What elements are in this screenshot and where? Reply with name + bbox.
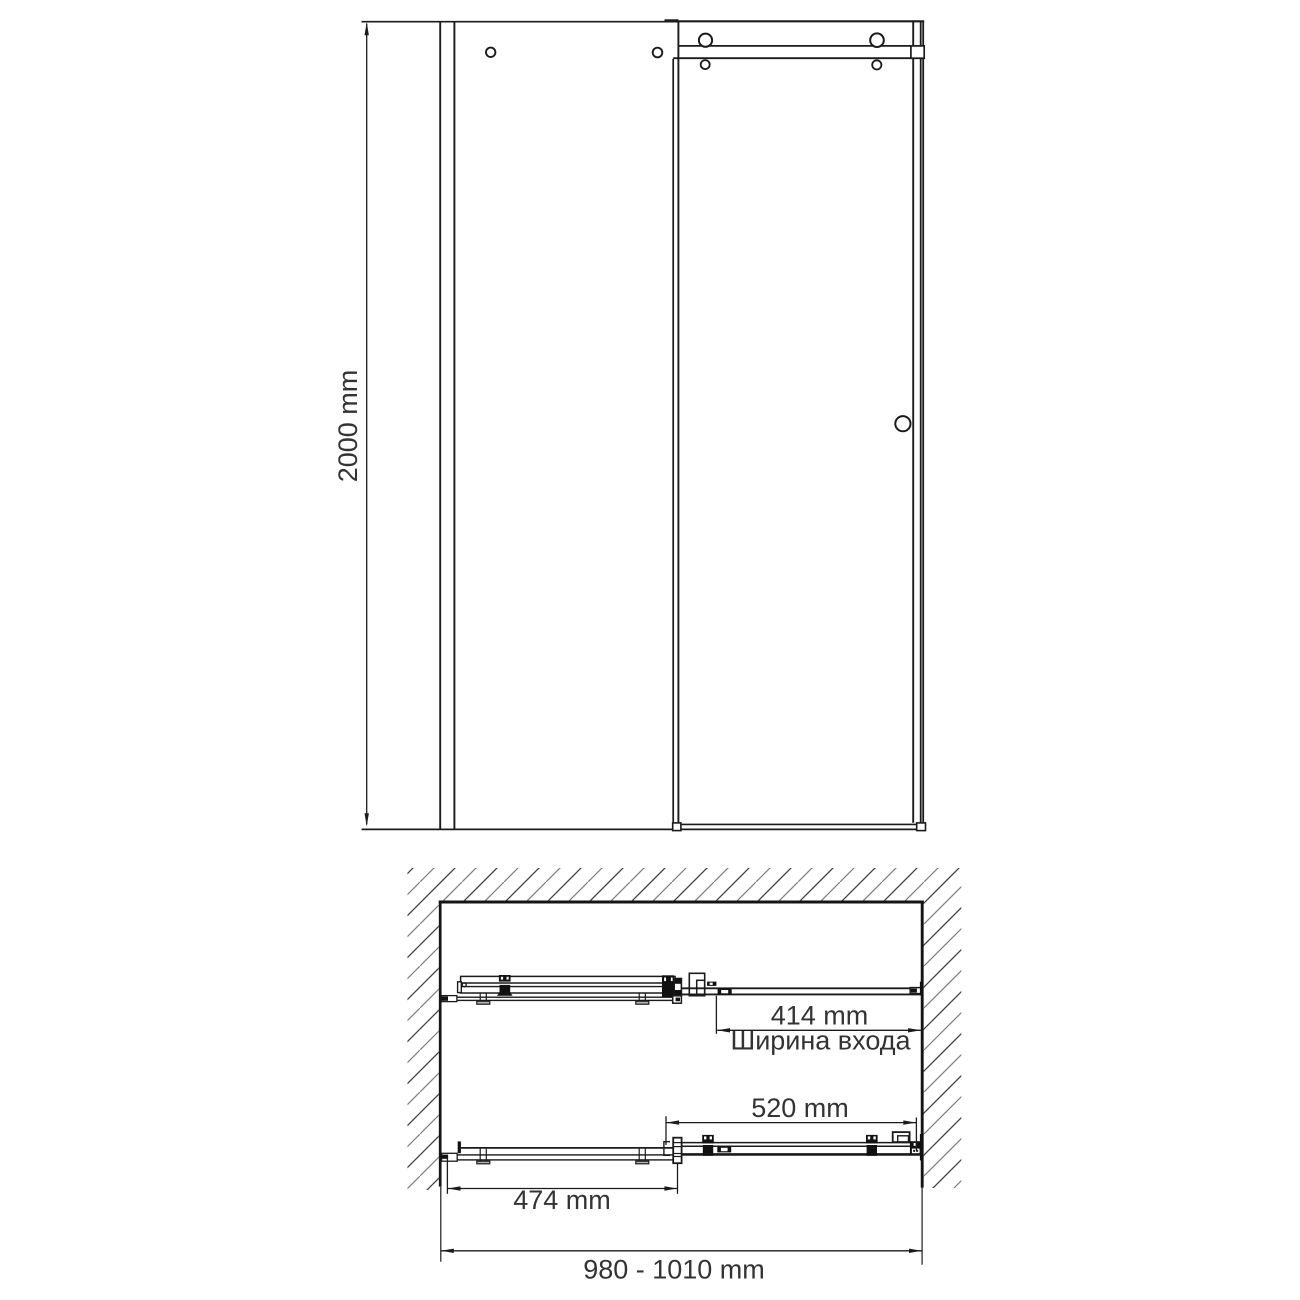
svg-text:980 - 1010 mm: 980 - 1010 mm [583,1255,765,1285]
svg-text:2000 mm: 2000 mm [333,370,363,483]
svg-text:520 mm: 520 mm [751,1093,849,1123]
svg-text:474 mm: 474 mm [513,1185,611,1215]
svg-text:Ширина входа: Ширина входа [730,1026,911,1056]
